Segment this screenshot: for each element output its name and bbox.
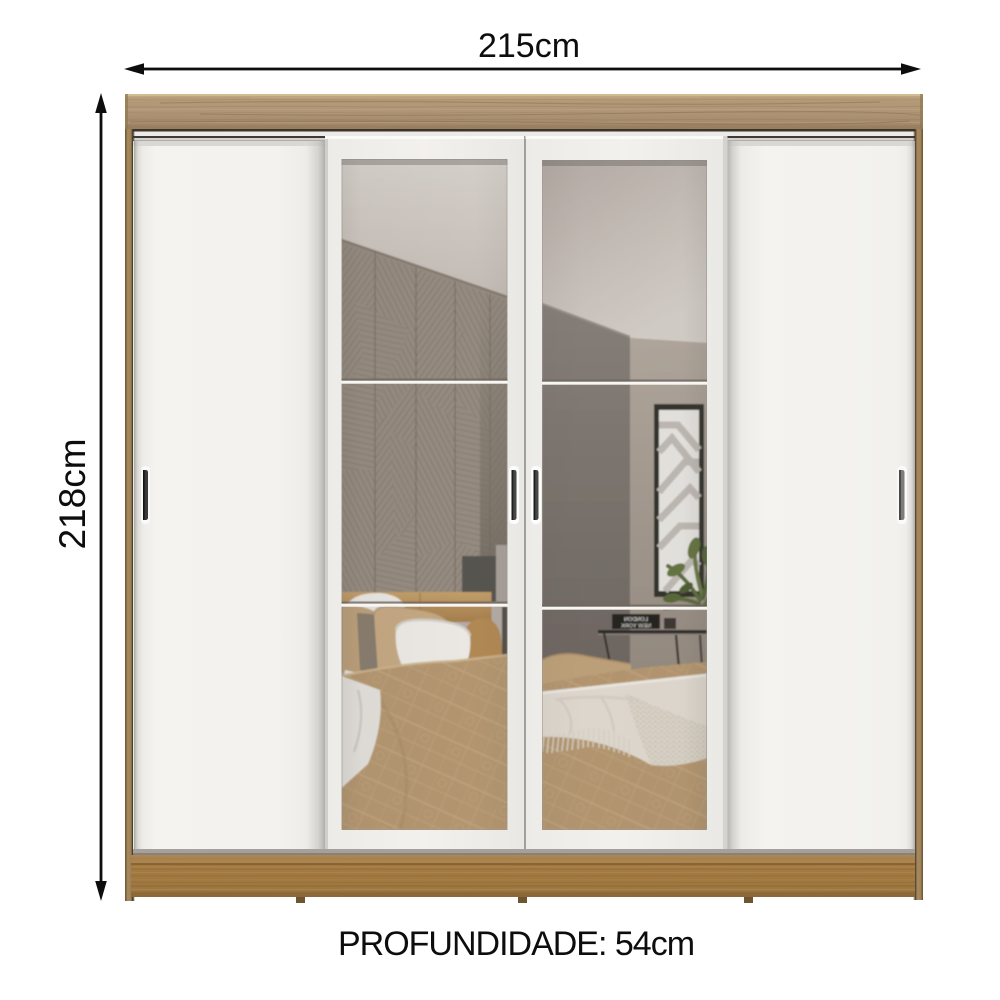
svg-text:215cm: 215cm <box>478 27 580 65</box>
svg-text:PROFUNDIDADE: 54cm: PROFUNDIDADE: 54cm <box>338 925 694 963</box>
svg-text:218cm: 218cm <box>52 438 93 549</box>
